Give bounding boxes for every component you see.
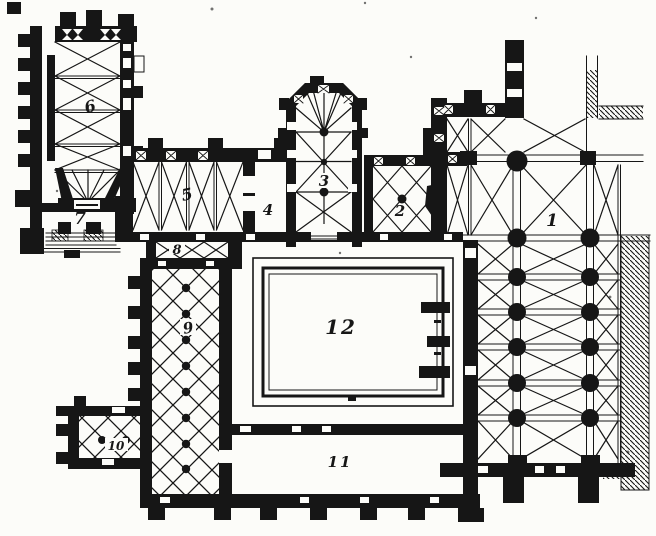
room-label-4: 4 <box>263 201 273 219</box>
room-label-3: 3 <box>319 172 329 190</box>
floor-plan-svg: 1 2 3 4 5 6 7 8 9 10 11 12 <box>0 0 656 536</box>
room-label-10: 10 <box>108 439 125 453</box>
room-label-1: 1 <box>546 211 558 231</box>
room-label-12: 12 <box>325 315 357 339</box>
floor-plan-figure: 1 2 3 4 5 6 7 8 9 10 11 12 <box>0 0 656 536</box>
room-label-8: 8 <box>172 243 181 258</box>
room-label-2: 2 <box>394 202 405 220</box>
room-label-7: 7 <box>74 209 86 229</box>
room-label-11: 11 <box>328 453 353 471</box>
room-9-walk <box>152 269 219 495</box>
